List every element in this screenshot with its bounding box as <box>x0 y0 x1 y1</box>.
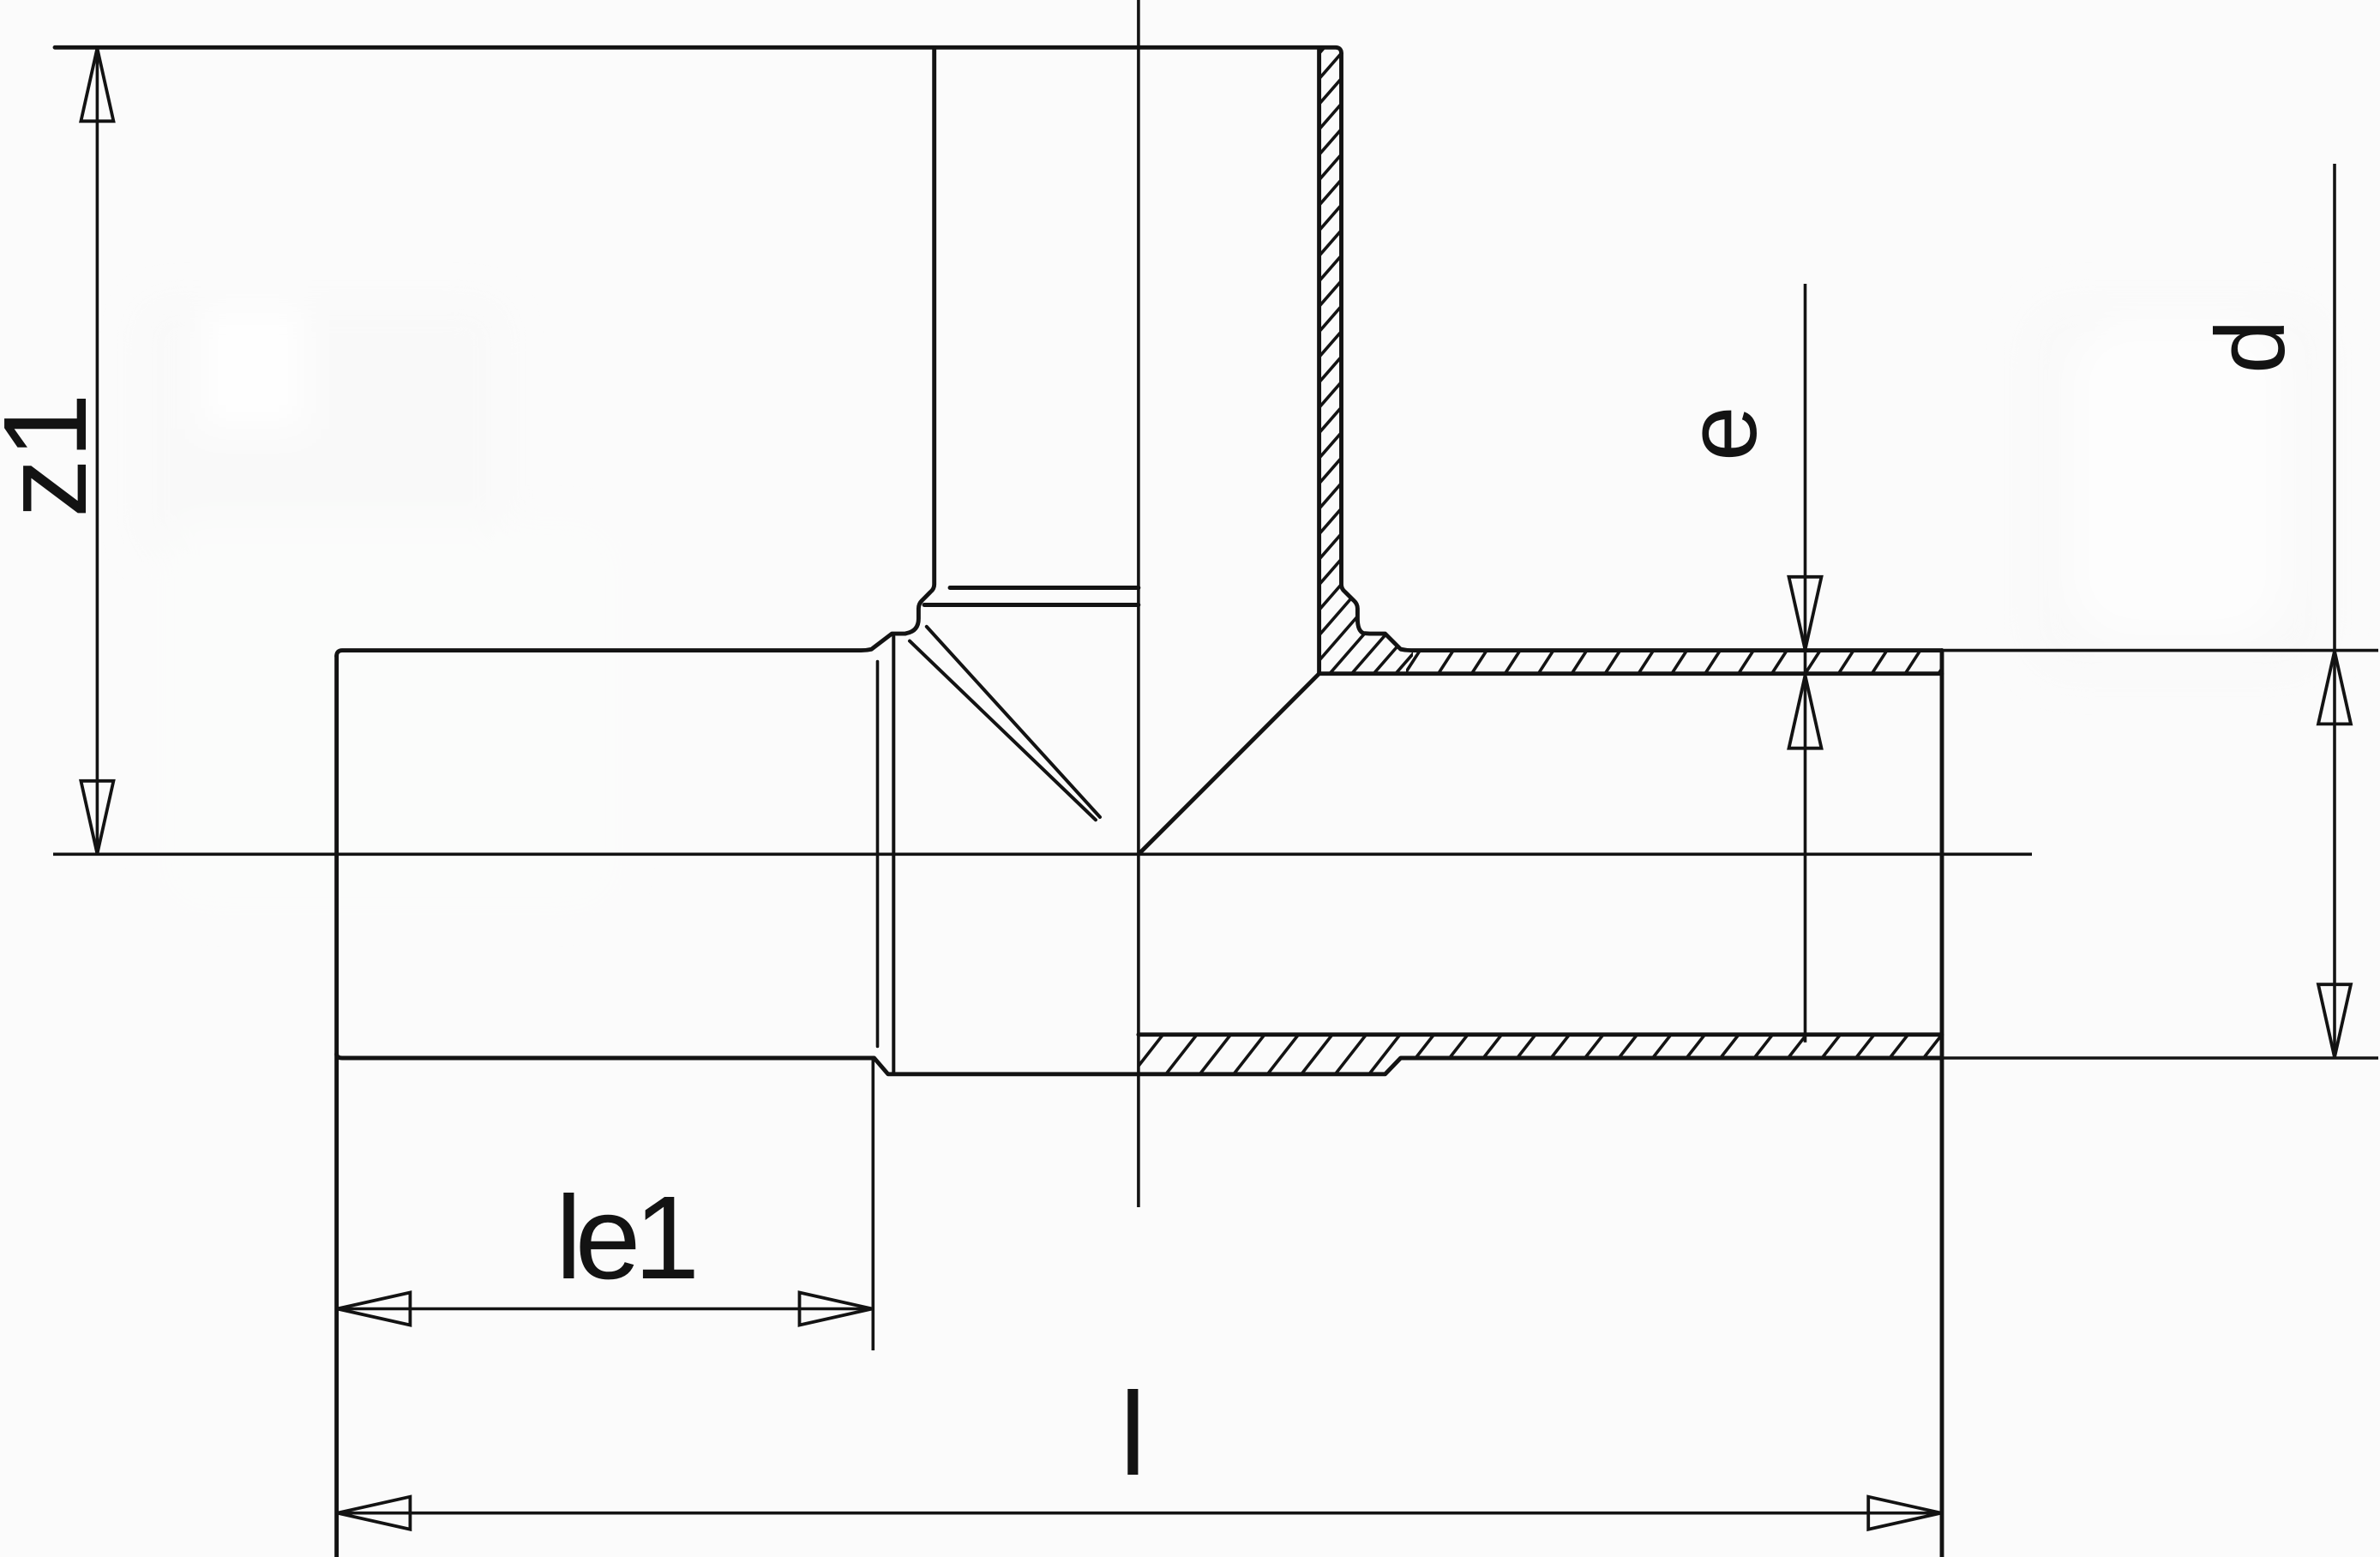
svg-text:d: d <box>2197 320 2305 374</box>
svg-text:l: l <box>1120 1368 1146 1500</box>
svg-text:e: e <box>1666 406 1777 461</box>
svg-text:le1: le1 <box>556 1172 694 1304</box>
svg-text:z1: z1 <box>0 393 111 518</box>
